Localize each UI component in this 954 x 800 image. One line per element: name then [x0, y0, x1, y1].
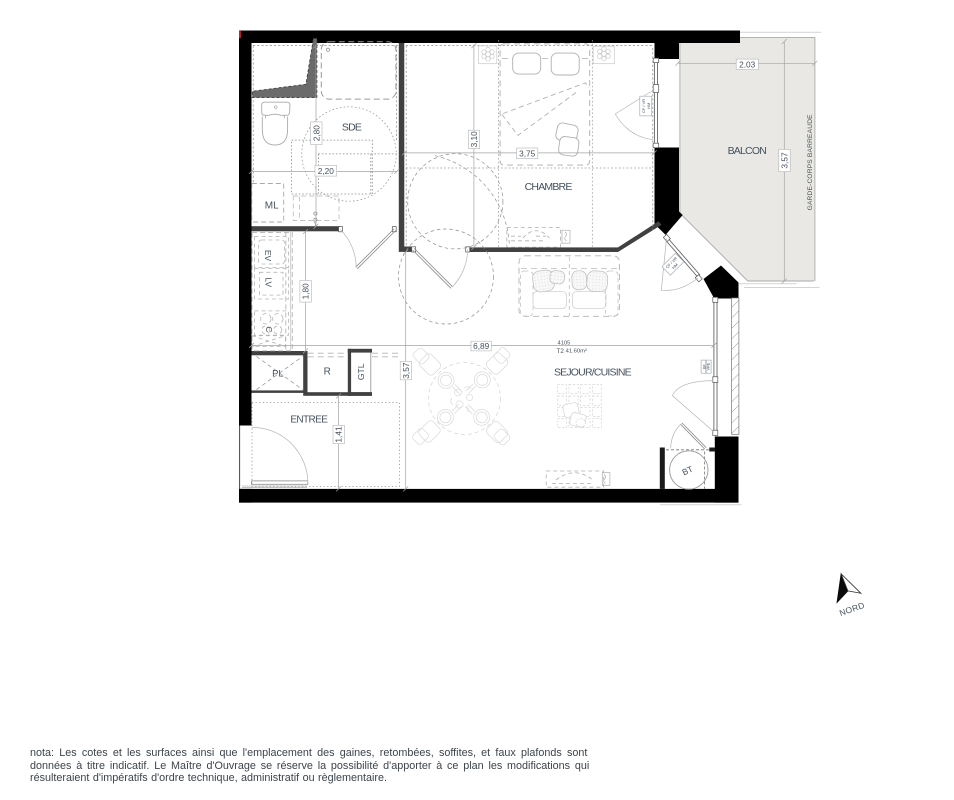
svg-text:4105: 4105: [558, 341, 571, 347]
svg-text:LV: LV: [264, 277, 274, 287]
svg-text:T2 41.60m²: T2 41.60m²: [557, 348, 587, 355]
svg-text:ENTREE: ENTREE: [290, 415, 328, 426]
svg-text:PL: PL: [272, 368, 284, 379]
svg-text:1,41: 1,41: [334, 426, 344, 443]
svg-text:VRE: VRE: [706, 362, 710, 370]
svg-text:3,10: 3,10: [469, 131, 479, 148]
svg-text:6,89: 6,89: [473, 341, 490, 351]
svg-text:3,57: 3,57: [401, 362, 411, 379]
svg-text:SEJOUR/CUISINE: SEJOUR/CUISINE: [554, 366, 632, 378]
svg-text:SDE: SDE: [342, 122, 362, 134]
svg-text:2.03: 2.03: [739, 59, 756, 69]
svg-text:2,20: 2,20: [318, 166, 335, 176]
svg-text:HM: HM: [646, 103, 651, 109]
svg-text:C: C: [264, 326, 274, 332]
svg-text:3,75: 3,75: [519, 148, 536, 158]
svg-text:R: R: [324, 366, 331, 377]
svg-text:GARDE-CORPS BARREAUDE: GARDE-CORPS BARREAUDE: [807, 114, 814, 211]
svg-text:ML: ML: [265, 201, 279, 212]
svg-text:CHAMBRE: CHAMBRE: [525, 181, 573, 193]
svg-text:2,80: 2,80: [311, 125, 321, 142]
svg-text:1,80: 1,80: [301, 283, 311, 300]
svg-text:3,57: 3,57: [780, 152, 790, 169]
svg-text:BALCON: BALCON: [728, 145, 767, 157]
svg-text:GTL: GTL: [356, 363, 366, 380]
svg-text:EV: EV: [263, 250, 273, 262]
